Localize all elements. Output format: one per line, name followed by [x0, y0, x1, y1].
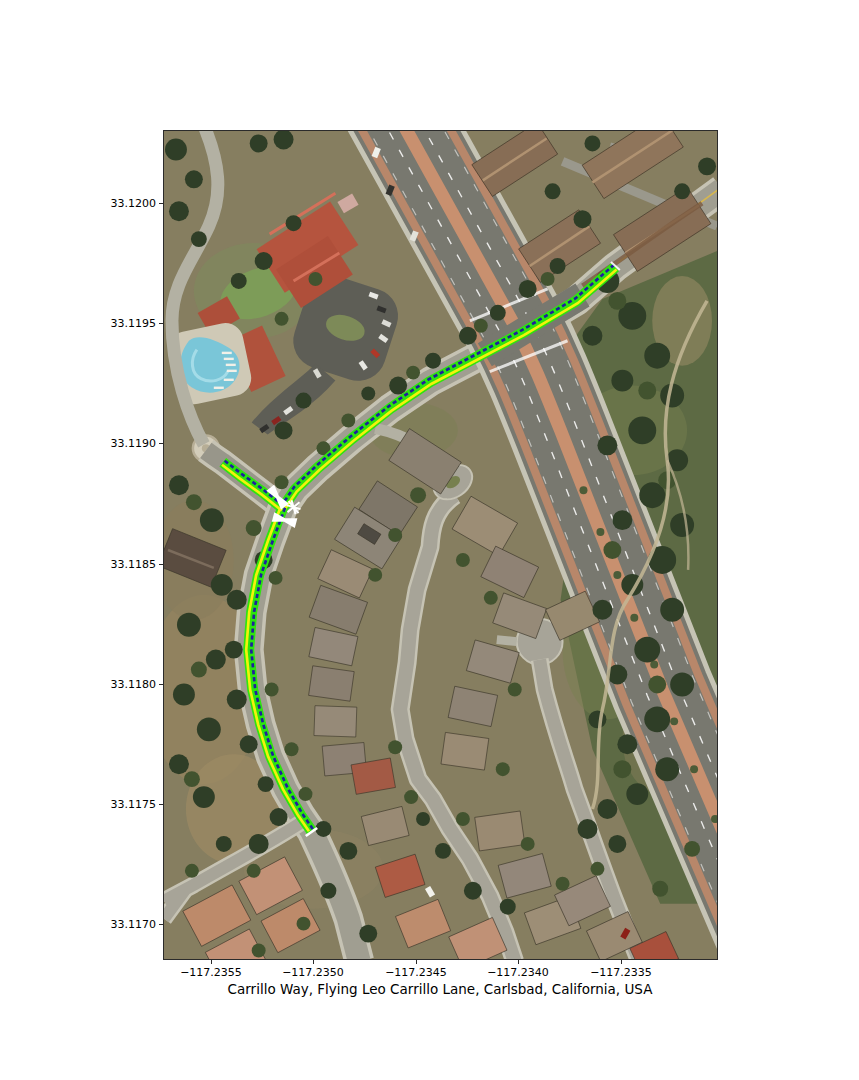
x-tick-mark	[416, 960, 417, 964]
y-tick-mark	[159, 443, 163, 444]
x-tick-label: −117.2350	[271, 967, 355, 978]
map-canvas	[163, 130, 718, 960]
plot-title: Carrillo Way, Flying Leo Carrillo Lane, …	[120, 981, 760, 997]
x-tick-mark	[211, 960, 212, 964]
x-tick-label: −117.2355	[169, 967, 253, 978]
y-tick-label: 33.1195	[104, 318, 156, 329]
x-tick-label: −117.2335	[579, 967, 663, 978]
x-tick-label: −117.2345	[374, 967, 458, 978]
y-tick-label: 33.1180	[104, 679, 156, 690]
x-tick-mark	[621, 960, 622, 964]
aerial-map-svg	[164, 131, 717, 959]
y-tick-label: 33.1170	[104, 919, 156, 930]
y-tick-mark	[159, 564, 163, 565]
y-tick-mark	[159, 323, 163, 324]
x-tick-label: −117.2340	[476, 967, 560, 978]
y-tick-mark	[159, 804, 163, 805]
y-tick-mark	[159, 924, 163, 925]
y-tick-label: 33.1190	[104, 438, 156, 449]
y-tick-mark	[159, 203, 163, 204]
y-tick-label: 33.1175	[104, 799, 156, 810]
y-tick-mark	[159, 684, 163, 685]
x-tick-mark	[313, 960, 314, 964]
matplotlib-figure: 33.1200 33.1195 33.1190 33.1185 33.1180 …	[0, 0, 859, 1080]
x-tick-mark	[518, 960, 519, 964]
y-tick-label: 33.1185	[104, 559, 156, 570]
y-tick-label: 33.1200	[104, 198, 156, 209]
